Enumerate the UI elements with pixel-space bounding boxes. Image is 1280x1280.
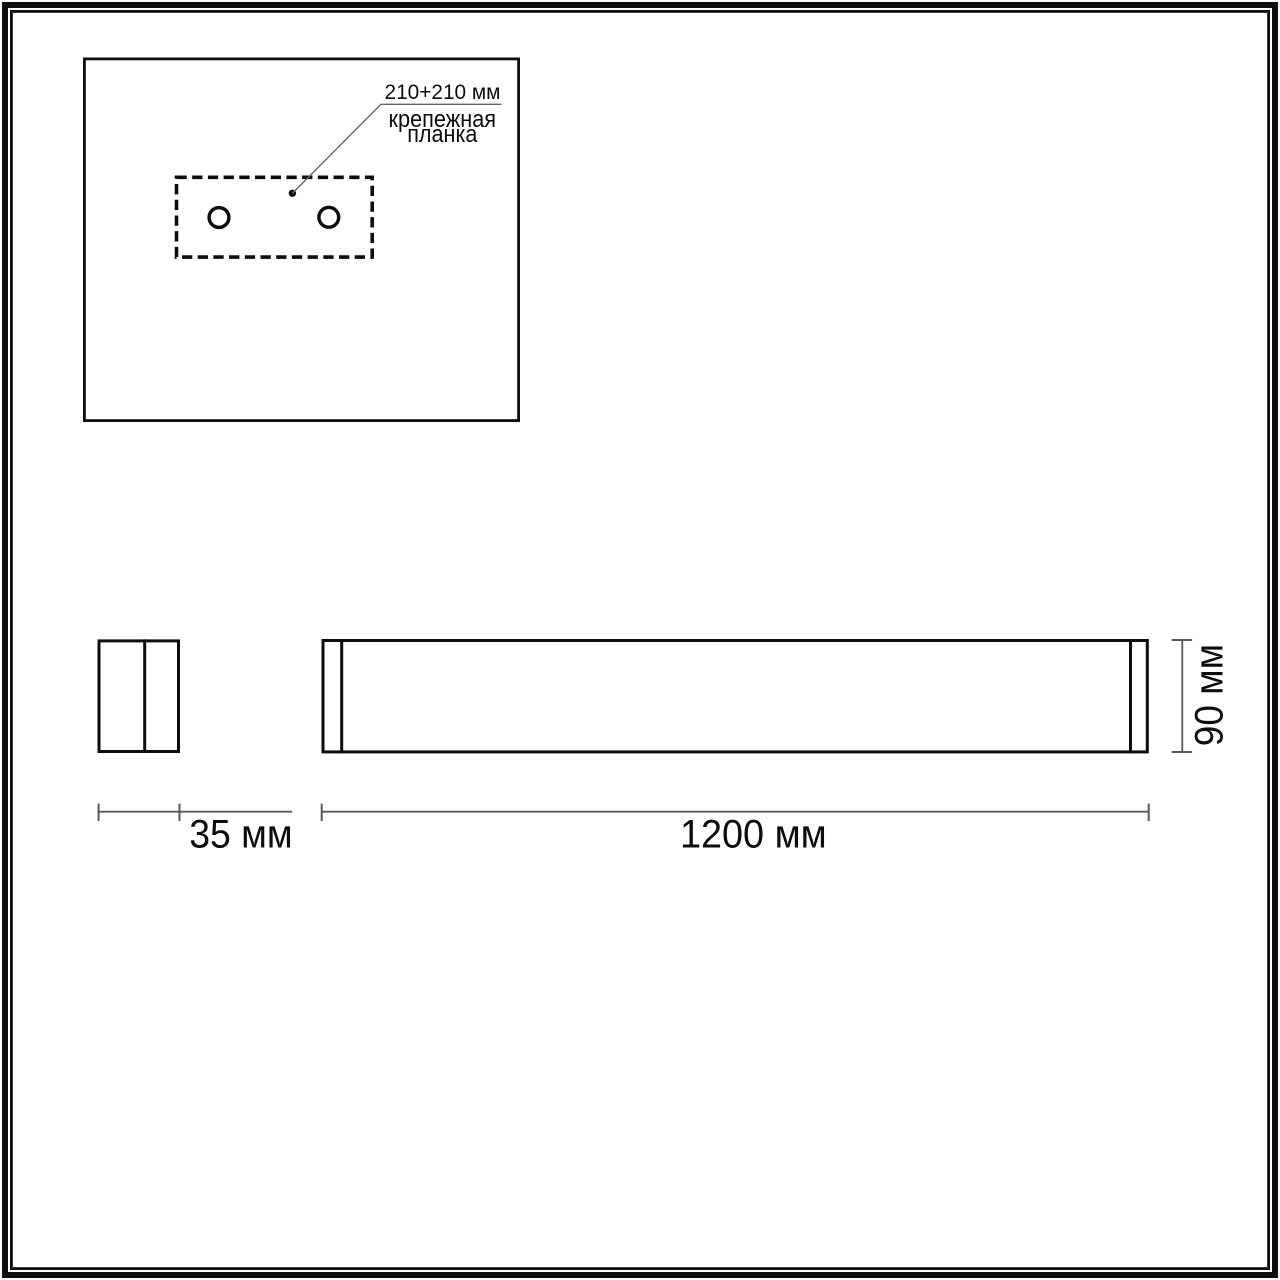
svg-text:90 мм: 90 мм [1188,644,1232,746]
svg-text:1200 мм: 1200 мм [680,813,827,857]
svg-text:35 мм: 35 мм [189,813,292,857]
svg-text:210+210 мм: 210+210 мм [385,81,501,104]
svg-text:планка: планка [407,121,478,148]
